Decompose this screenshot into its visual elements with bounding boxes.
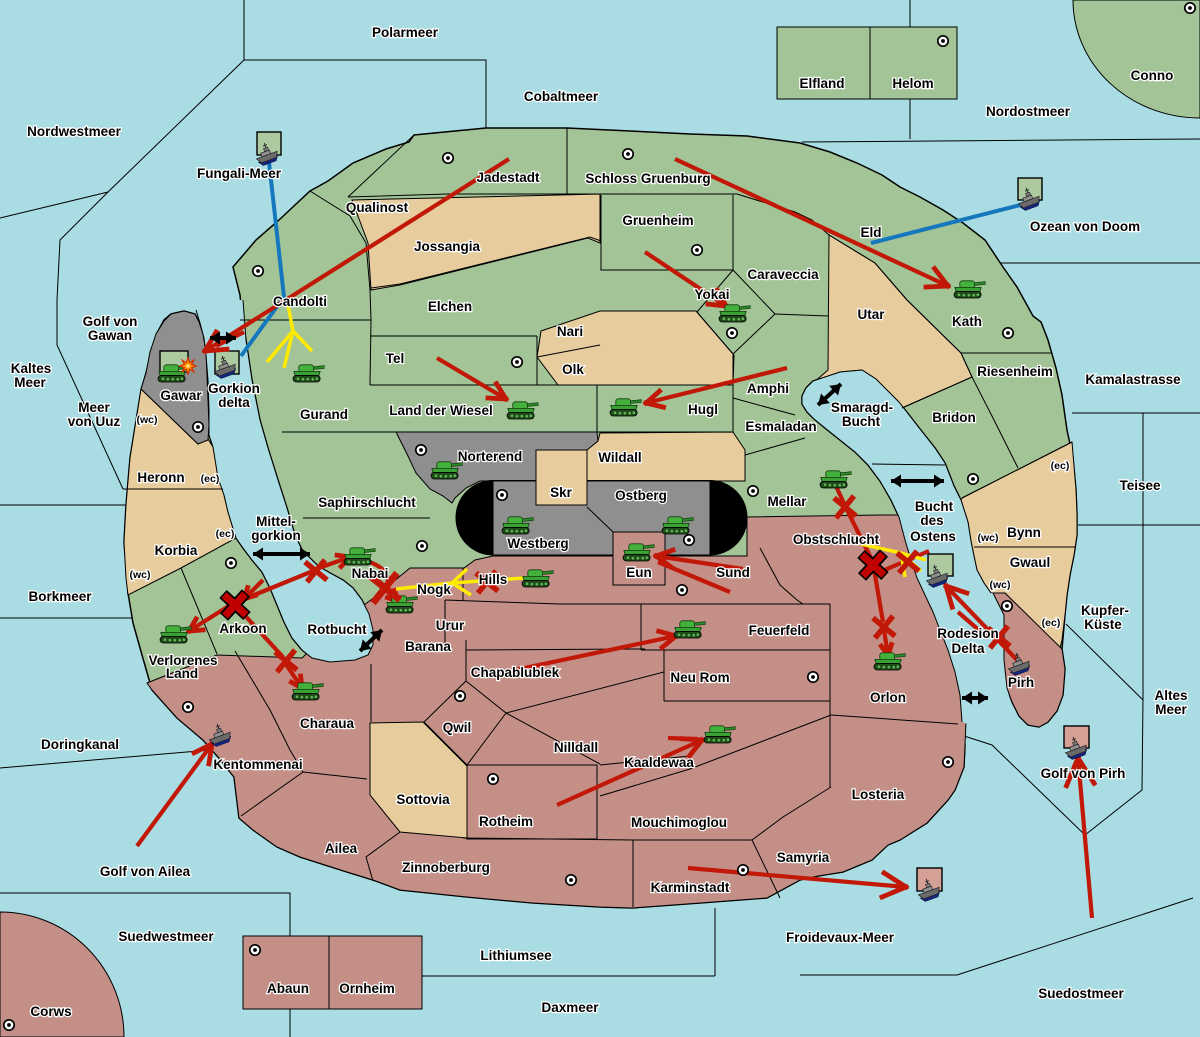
svg-text:Yokai: Yokai [694, 287, 729, 302]
svg-text:Lithiumsee: Lithiumsee [480, 948, 552, 963]
svg-text:Gurand: Gurand [300, 407, 348, 422]
svg-text:Mouchimoglou: Mouchimoglou [631, 815, 727, 830]
svg-text:(ec): (ec) [201, 473, 220, 485]
svg-text:Charaua: Charaua [300, 716, 355, 731]
svg-text:Elfland: Elfland [799, 76, 844, 91]
svg-text:Meer: Meer [1155, 702, 1187, 717]
svg-text:Korbia: Korbia [155, 543, 198, 558]
svg-text:Kath: Kath [952, 314, 982, 329]
svg-text:Jadestadt: Jadestadt [476, 170, 540, 185]
svg-text:des: des [920, 513, 943, 528]
svg-text:Nabai: Nabai [352, 566, 389, 581]
svg-text:Wildall: Wildall [598, 450, 641, 465]
svg-text:Gawan: Gawan [88, 328, 132, 343]
svg-text:Barana: Barana [405, 639, 451, 654]
svg-text:Kamalastrasse: Kamalastrasse [1085, 372, 1181, 387]
svg-text:Gorkion: Gorkion [208, 381, 260, 396]
svg-text:Ailea: Ailea [325, 841, 358, 856]
svg-text:Land: Land [166, 666, 198, 681]
svg-text:Smaragd-: Smaragd- [831, 400, 893, 415]
svg-text:Schloss Gruenburg: Schloss Gruenburg [585, 171, 710, 186]
svg-text:Arkoon: Arkoon [219, 621, 266, 636]
svg-text:Mellar: Mellar [767, 494, 807, 509]
svg-text:Jossangia: Jossangia [414, 239, 481, 254]
svg-text:Abaun: Abaun [267, 981, 309, 996]
svg-text:Conno: Conno [1131, 68, 1174, 83]
svg-text:Chapablublek: Chapablublek [471, 665, 560, 680]
svg-text:Esmaladan: Esmaladan [745, 419, 816, 434]
svg-text:(ec): (ec) [1051, 460, 1070, 472]
svg-text:von Uuz: von Uuz [68, 414, 121, 429]
svg-text:(ec): (ec) [1042, 617, 1061, 629]
svg-text:Amphi: Amphi [747, 381, 789, 396]
svg-text:Nari: Nari [557, 324, 583, 339]
svg-text:(wc): (wc) [137, 414, 158, 426]
svg-text:(wc): (wc) [130, 569, 151, 581]
svg-text:Kentommenai: Kentommenai [213, 757, 302, 772]
svg-text:Neu Rom: Neu Rom [670, 670, 729, 685]
svg-text:Golf von: Golf von [83, 314, 138, 329]
svg-text:Bucht: Bucht [842, 414, 881, 429]
svg-text:Gwaul: Gwaul [1010, 555, 1051, 570]
svg-text:Candolti: Candolti [273, 294, 327, 309]
svg-text:Norterend: Norterend [458, 449, 523, 464]
svg-text:Daxmeer: Daxmeer [541, 1000, 599, 1015]
svg-text:Westberg: Westberg [507, 536, 568, 551]
svg-text:Ozean von Doom: Ozean von Doom [1030, 219, 1140, 234]
svg-text:Qualinost: Qualinost [346, 200, 409, 215]
svg-text:Eun: Eun [626, 565, 652, 580]
svg-text:gorkion: gorkion [251, 528, 301, 543]
svg-text:Ornheim: Ornheim [339, 981, 395, 996]
svg-text:Rodesion: Rodesion [937, 626, 999, 641]
svg-text:Losteria: Losteria [852, 787, 905, 802]
svg-text:Nordwestmeer: Nordwestmeer [27, 124, 122, 139]
svg-text:Borkmeer: Borkmeer [28, 589, 92, 604]
svg-text:Utar: Utar [857, 307, 885, 322]
svg-text:Urur: Urur [436, 618, 465, 633]
svg-text:Orlon: Orlon [870, 690, 906, 705]
svg-text:Kaltes: Kaltes [11, 361, 52, 376]
svg-text:Meer: Meer [14, 375, 46, 390]
svg-text:Gruenheim: Gruenheim [622, 213, 693, 228]
svg-text:Skr: Skr [550, 485, 573, 500]
svg-text:Cobaltmeer: Cobaltmeer [524, 89, 599, 104]
svg-text:Corws: Corws [30, 1004, 71, 1019]
svg-text:Froidevaux-Meer: Froidevaux-Meer [786, 930, 895, 945]
svg-text:Polarmeer: Polarmeer [372, 25, 439, 40]
svg-text:(wc): (wc) [978, 532, 999, 544]
svg-text:Fungali-Meer: Fungali-Meer [197, 166, 282, 181]
svg-text:Nilldall: Nilldall [554, 740, 598, 755]
svg-text:Karminstadt: Karminstadt [651, 880, 730, 895]
svg-text:Samyria: Samyria [777, 850, 830, 865]
svg-text:Bucht: Bucht [915, 499, 954, 514]
svg-text:Golf von Pirh: Golf von Pirh [1041, 766, 1126, 781]
svg-text:Land der Wiesel: Land der Wiesel [389, 403, 492, 418]
svg-text:Sottovia: Sottovia [396, 792, 450, 807]
svg-text:Gawar: Gawar [160, 388, 202, 403]
svg-text:Eld: Eld [860, 225, 881, 240]
svg-text:Altes: Altes [1154, 688, 1187, 703]
svg-text:Suedostmeer: Suedostmeer [1038, 986, 1124, 1001]
svg-text:Caraveccia: Caraveccia [747, 267, 819, 282]
svg-text:delta: delta [218, 395, 250, 410]
svg-text:Meer: Meer [78, 400, 110, 415]
svg-text:Saphirschlucht: Saphirschlucht [318, 495, 416, 510]
svg-text:Riesenheim: Riesenheim [977, 364, 1053, 379]
svg-text:Nordostmeer: Nordostmeer [986, 104, 1071, 119]
svg-text:Doringkanal: Doringkanal [41, 737, 119, 752]
svg-text:Nogk: Nogk [417, 582, 451, 597]
svg-text:Obstschlucht: Obstschlucht [793, 532, 880, 547]
svg-text:Qwil: Qwil [443, 720, 472, 735]
svg-text:(wc): (wc) [990, 579, 1011, 591]
svg-text:Rotheim: Rotheim [479, 814, 533, 829]
svg-text:Heronn: Heronn [137, 470, 184, 485]
svg-text:Golf von Ailea: Golf von Ailea [100, 864, 191, 879]
svg-text:Teisee: Teisee [1119, 478, 1161, 493]
svg-text:Ostens: Ostens [910, 529, 956, 544]
svg-text:(ec): (ec) [216, 528, 235, 540]
svg-text:Ostberg: Ostberg [615, 488, 667, 503]
svg-text:Helom: Helom [892, 76, 933, 91]
svg-text:Sund: Sund [716, 565, 750, 580]
svg-text:Hugl: Hugl [688, 402, 718, 417]
svg-text:Olk: Olk [562, 362, 584, 377]
svg-text:Kaaldewaa: Kaaldewaa [624, 755, 694, 770]
svg-text:Zinnoberburg: Zinnoberburg [402, 860, 490, 875]
svg-text:Feuerfeld: Feuerfeld [749, 623, 810, 638]
svg-text:Suedwestmeer: Suedwestmeer [118, 929, 214, 944]
svg-text:Hills: Hills [479, 572, 508, 587]
svg-text:Bridon: Bridon [932, 410, 976, 425]
svg-text:Pirh: Pirh [1008, 675, 1034, 690]
svg-text:Tel: Tel [386, 351, 405, 366]
svg-text:Mittel-: Mittel- [256, 514, 296, 529]
svg-text:Kupfer-: Kupfer- [1081, 603, 1129, 618]
svg-text:Delta: Delta [951, 641, 985, 656]
svg-text:Bynn: Bynn [1007, 525, 1041, 540]
svg-text:Rotbucht: Rotbucht [307, 622, 367, 637]
svg-text:Küste: Küste [1084, 617, 1122, 632]
svg-text:Elchen: Elchen [428, 299, 472, 314]
